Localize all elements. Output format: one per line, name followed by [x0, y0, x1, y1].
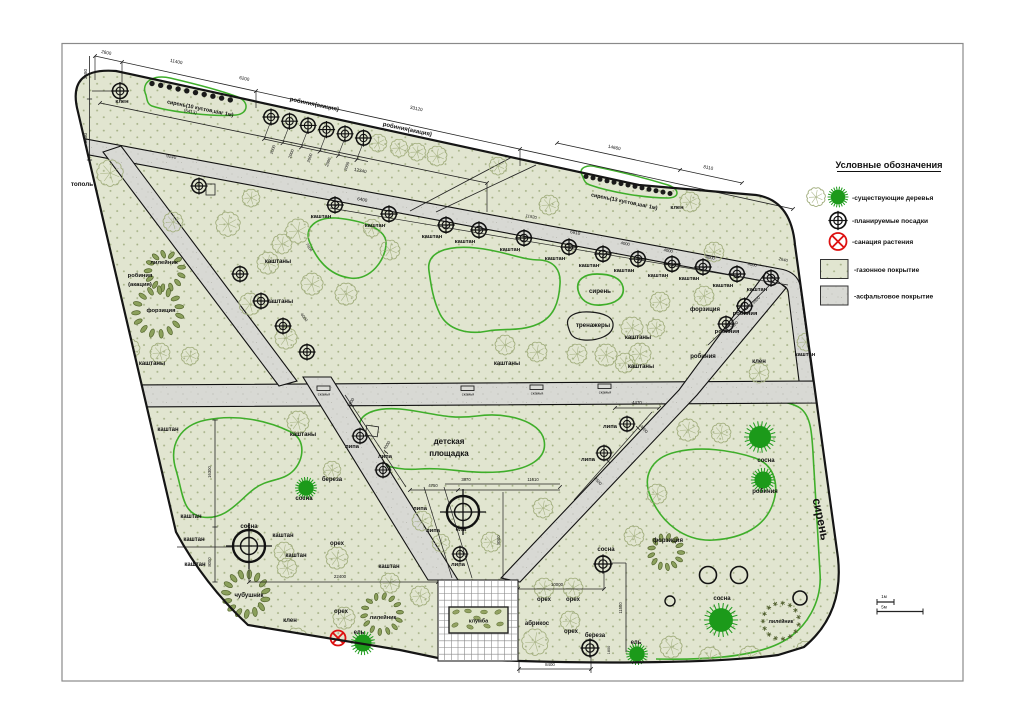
svg-text:сосна: сосна [597, 547, 615, 553]
svg-text:каштан: каштан [311, 214, 332, 220]
svg-text:4470: 4470 [632, 400, 642, 405]
svg-text:каштан: каштан [614, 268, 635, 274]
svg-text:липа: липа [581, 457, 596, 463]
svg-text:форзиция: форзиция [653, 537, 683, 544]
svg-text:каштаны: каштаны [494, 361, 520, 367]
svg-text:орех: орех [564, 629, 579, 635]
svg-text:липа: липа [413, 506, 428, 512]
svg-text:каштан: каштан [455, 239, 476, 245]
svg-text:4750: 4750 [428, 483, 438, 488]
svg-text:8000: 8000 [496, 535, 501, 545]
svg-text:робиния: робиния [733, 310, 758, 317]
svg-text:береза: береза [585, 632, 606, 639]
svg-text:каштаны: каштаны [267, 299, 293, 305]
svg-text:каштаны: каштаны [625, 335, 651, 341]
svg-text:площадка: площадка [429, 449, 469, 458]
svg-text:сосна: сосна [240, 524, 258, 530]
svg-text:лилейник: лилейник [150, 259, 178, 266]
svg-text:11500: 11500 [618, 602, 623, 614]
svg-text:орех: орех [330, 541, 345, 547]
svg-text:сосна: сосна [757, 458, 775, 464]
svg-text:ель: ель [456, 527, 467, 533]
svg-text:скамья: скамья [318, 393, 330, 397]
svg-text:каштан: каштан [272, 533, 294, 539]
svg-text:(акация): (акация) [128, 282, 152, 288]
svg-text:каштаны: каштаны [265, 259, 291, 265]
svg-text:форзиция: форзиция [147, 307, 176, 314]
svg-text:клен: клен [115, 99, 129, 105]
svg-text:3870: 3870 [461, 477, 471, 482]
svg-text:1800: 1800 [607, 646, 611, 654]
svg-text:форзиция: форзиция [690, 306, 720, 313]
svg-text:каштаны: каштаны [628, 364, 654, 370]
svg-text:робиния: робиния [715, 328, 740, 335]
svg-text:каштаны: каштаны [139, 361, 165, 367]
svg-text:1м: 1м [881, 594, 887, 599]
svg-text:береза: береза [322, 476, 343, 483]
svg-text:липа: липа [451, 562, 466, 568]
svg-text:-планируемые посадки: -планируемые посадки [852, 218, 928, 225]
svg-text:скамья: скамья [531, 392, 543, 396]
svg-text:липа: липа [603, 424, 618, 430]
svg-text:робиния: робиния [752, 488, 778, 495]
svg-text:Условные обозначения: Условные обозначения [835, 160, 942, 170]
svg-text:каштан: каштан [157, 427, 179, 433]
svg-text:сосна: сосна [295, 496, 313, 502]
svg-text:скамья: скамья [599, 391, 611, 395]
svg-text:орех: орех [334, 609, 349, 615]
svg-text:каштан: каштан [545, 256, 566, 262]
svg-text:ель: ель [354, 630, 365, 636]
svg-text:22400: 22400 [334, 574, 347, 579]
svg-text:каштан: каштан [365, 223, 386, 229]
svg-text:лилейник: лилейник [370, 614, 397, 621]
svg-text:липа: липа [426, 528, 441, 534]
svg-text:каштан: каштан [285, 553, 307, 559]
svg-text:клен: клен [752, 359, 766, 365]
svg-text:-асфальтовое покрытие: -асфальтовое покрытие [854, 294, 934, 301]
svg-text:каштан: каштан [713, 283, 734, 289]
svg-text:каштан: каштан [579, 263, 600, 269]
svg-text:орех: орех [566, 597, 581, 603]
svg-text:каштан: каштан [422, 234, 443, 240]
svg-text:липа: липа [378, 454, 393, 460]
svg-text:тополь: тополь [71, 181, 93, 188]
svg-text:8000: 8000 [207, 557, 212, 567]
svg-text:чубушник: чубушник [234, 592, 263, 599]
svg-text:липа: липа [345, 444, 360, 450]
svg-text:сирень: сирень [589, 288, 611, 295]
svg-text:каштан: каштан [183, 537, 205, 543]
svg-text:тренажеры: тренажеры [576, 322, 610, 329]
svg-text:детская: детская [434, 437, 465, 446]
svg-text:каштаны: каштаны [290, 432, 316, 438]
svg-text:10000: 10000 [551, 582, 564, 587]
svg-text:абрикос: абрикос [525, 620, 550, 627]
svg-text:сосна: сосна [713, 596, 731, 602]
svg-text:каштан: каштан [378, 564, 400, 570]
svg-text:-существующие деревья: -существующие деревья [852, 195, 934, 202]
svg-text:5м: 5м [881, 605, 887, 610]
svg-text:скамья: скамья [462, 393, 474, 397]
svg-text:ель: ель [631, 640, 642, 646]
svg-text:робиния: робиния [128, 272, 153, 279]
svg-text:лилейник: лилейник [769, 618, 794, 625]
svg-text:клен: клен [670, 205, 684, 211]
svg-text:робиния: робиния [690, 353, 716, 360]
svg-text:каштан: каштан [648, 273, 669, 279]
svg-text:каштан: каштан [679, 276, 700, 282]
svg-text:11610: 11610 [527, 477, 539, 482]
svg-text:каштан: каштан [500, 247, 521, 253]
svg-text:-санация растения: -санация растения [852, 239, 913, 246]
svg-text:каштан: каштан [795, 352, 816, 358]
svg-text:16300: 16300 [207, 466, 212, 478]
svg-text:орех: орех [537, 597, 552, 603]
svg-text:-газонное покрытие: -газонное покрытие [854, 267, 920, 274]
svg-text:каштан: каштан [180, 514, 202, 520]
svg-text:клен: клен [283, 618, 297, 624]
svg-text:клумба: клумба [469, 618, 489, 625]
